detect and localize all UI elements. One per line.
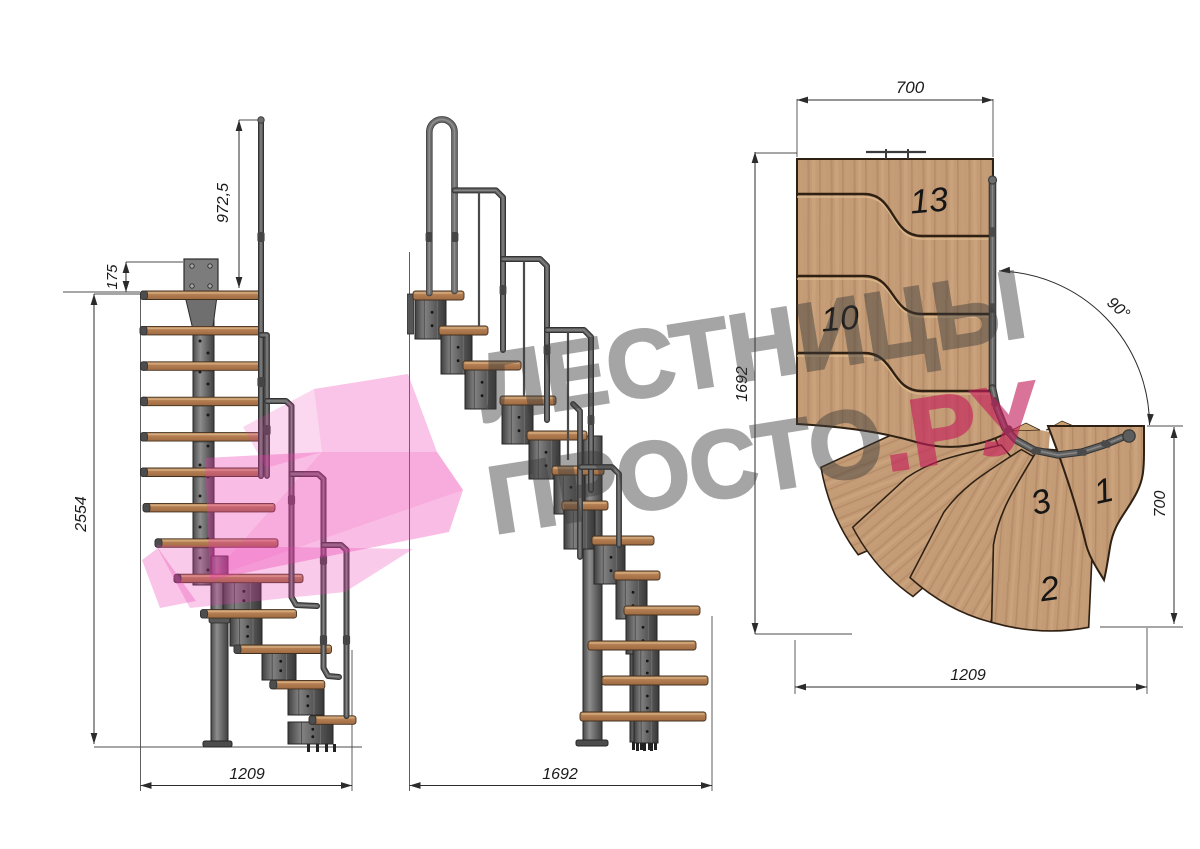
svg-text:1209: 1209 xyxy=(950,667,986,684)
svg-text:175: 175 xyxy=(104,264,121,290)
svg-text:1692: 1692 xyxy=(542,766,578,783)
svg-text:13: 13 xyxy=(909,180,950,221)
svg-text:700: 700 xyxy=(1152,491,1169,518)
svg-text:700: 700 xyxy=(896,78,925,97)
svg-text:2554: 2554 xyxy=(73,496,90,533)
svg-text:1209: 1209 xyxy=(229,766,265,783)
svg-text:972,5: 972,5 xyxy=(215,183,232,223)
